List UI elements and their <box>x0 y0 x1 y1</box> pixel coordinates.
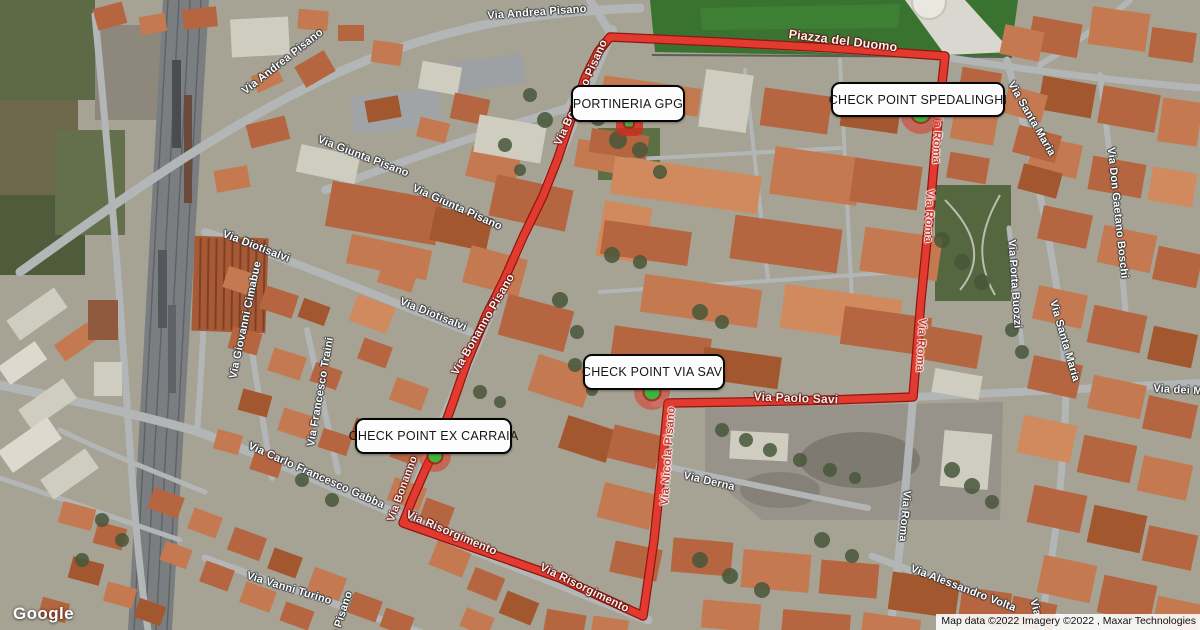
checkpoint-check-point-spedalinghi[interactable]: CHECK POINT SPEDALINGHI <box>831 82 1005 117</box>
google-logo[interactable]: Google <box>13 604 74 624</box>
checkpoint-labels-layer: PORTINERIA GPGCHECK POINT SPEDALINGHICHE… <box>0 0 1200 630</box>
checkpoint-portineria-gpg[interactable]: PORTINERIA GPG <box>571 85 685 122</box>
checkpoint-check-point-via-savi[interactable]: CHECK POINT VIA SAVI <box>583 354 725 390</box>
map-canvas[interactable]: Via Andrea PisanoVia Andrea PisanoVia Gi… <box>0 0 1200 630</box>
checkpoint-check-point-ex-carraia[interactable]: CHECK POINT EX CARRAIA <box>355 418 512 454</box>
map-copyright: Map data ©2022 Imagery ©2022 , Maxar Tec… <box>936 614 1200 630</box>
